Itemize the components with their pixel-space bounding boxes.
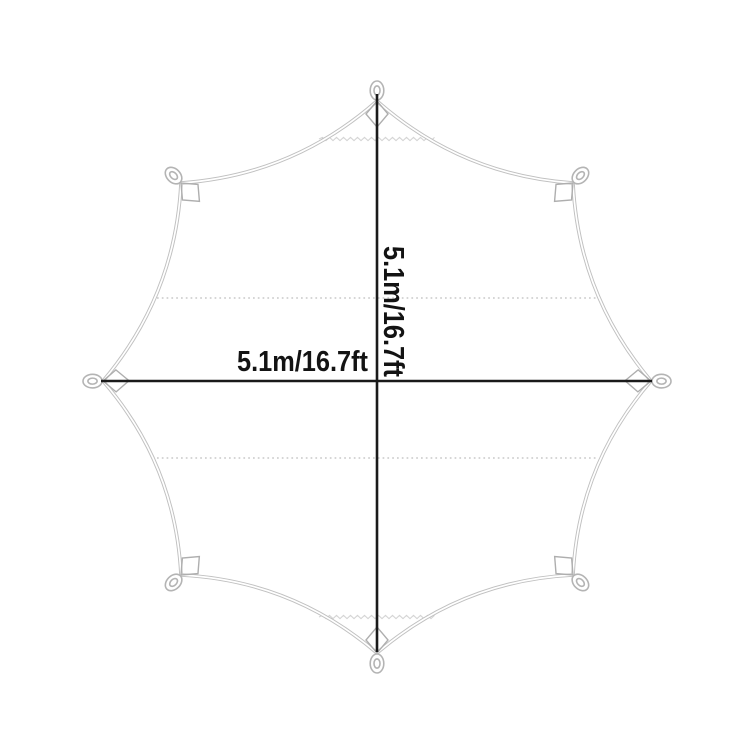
corner-loop-outer-ring — [370, 654, 384, 673]
diagram-canvas: 5.1m/16.7ft 5.1m/16.7ft — [0, 0, 750, 750]
corner-loop-outer-ring — [83, 374, 102, 388]
corner-reinforcement-patch — [181, 557, 199, 575]
corner-reinforcement-patch — [555, 557, 573, 575]
corner-reinforcement-patch — [181, 183, 199, 201]
width-dimension-label: 5.1m/16.7ft — [237, 346, 368, 378]
dimension-lines — [101, 94, 652, 652]
corner-loop-outer-ring — [652, 374, 671, 388]
height-dimension-label: 5.1m/16.7ft — [377, 246, 409, 377]
corner-reinforcement-patch — [555, 183, 573, 201]
tarp-dimension-diagram: 5.1m/16.7ft 5.1m/16.7ft — [0, 0, 750, 750]
